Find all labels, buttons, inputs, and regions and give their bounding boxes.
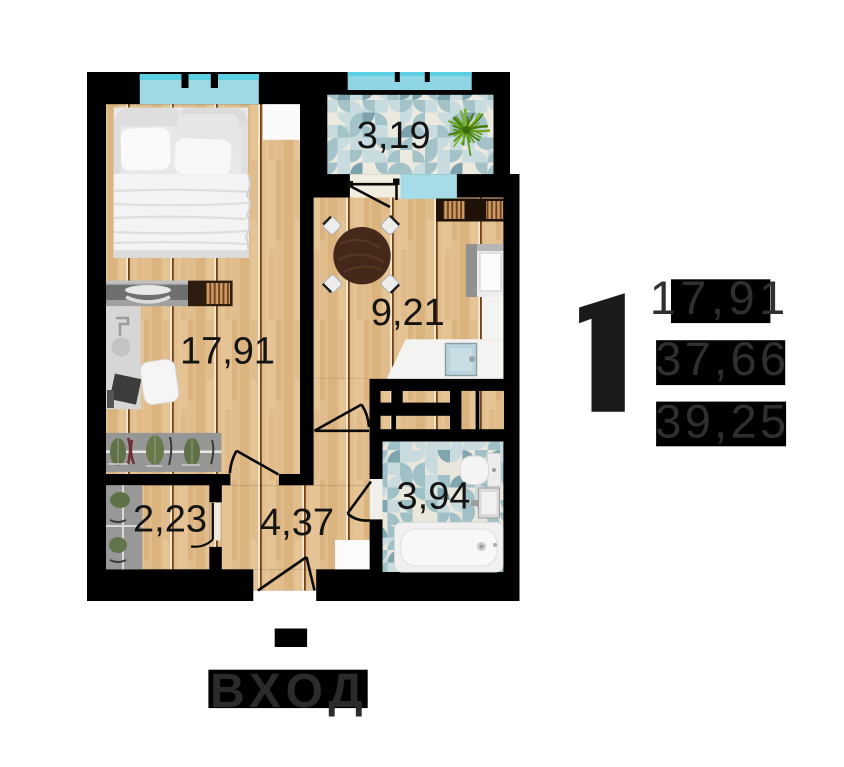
- svg-text:37,66: 37,66: [655, 332, 789, 385]
- svg-text:39,25: 39,25: [655, 395, 789, 448]
- svg-text:9,21: 9,21: [371, 292, 445, 334]
- svg-text:3,94: 3,94: [397, 475, 471, 517]
- svg-text:17,91: 17,91: [650, 271, 790, 324]
- svg-text:3,19: 3,19: [357, 115, 431, 157]
- svg-text:2,23: 2,23: [133, 499, 207, 541]
- svg-text:ВХОД: ВХОД: [210, 665, 369, 718]
- svg-text:17,91: 17,91: [180, 331, 275, 373]
- svg-text:4,37: 4,37: [260, 502, 334, 544]
